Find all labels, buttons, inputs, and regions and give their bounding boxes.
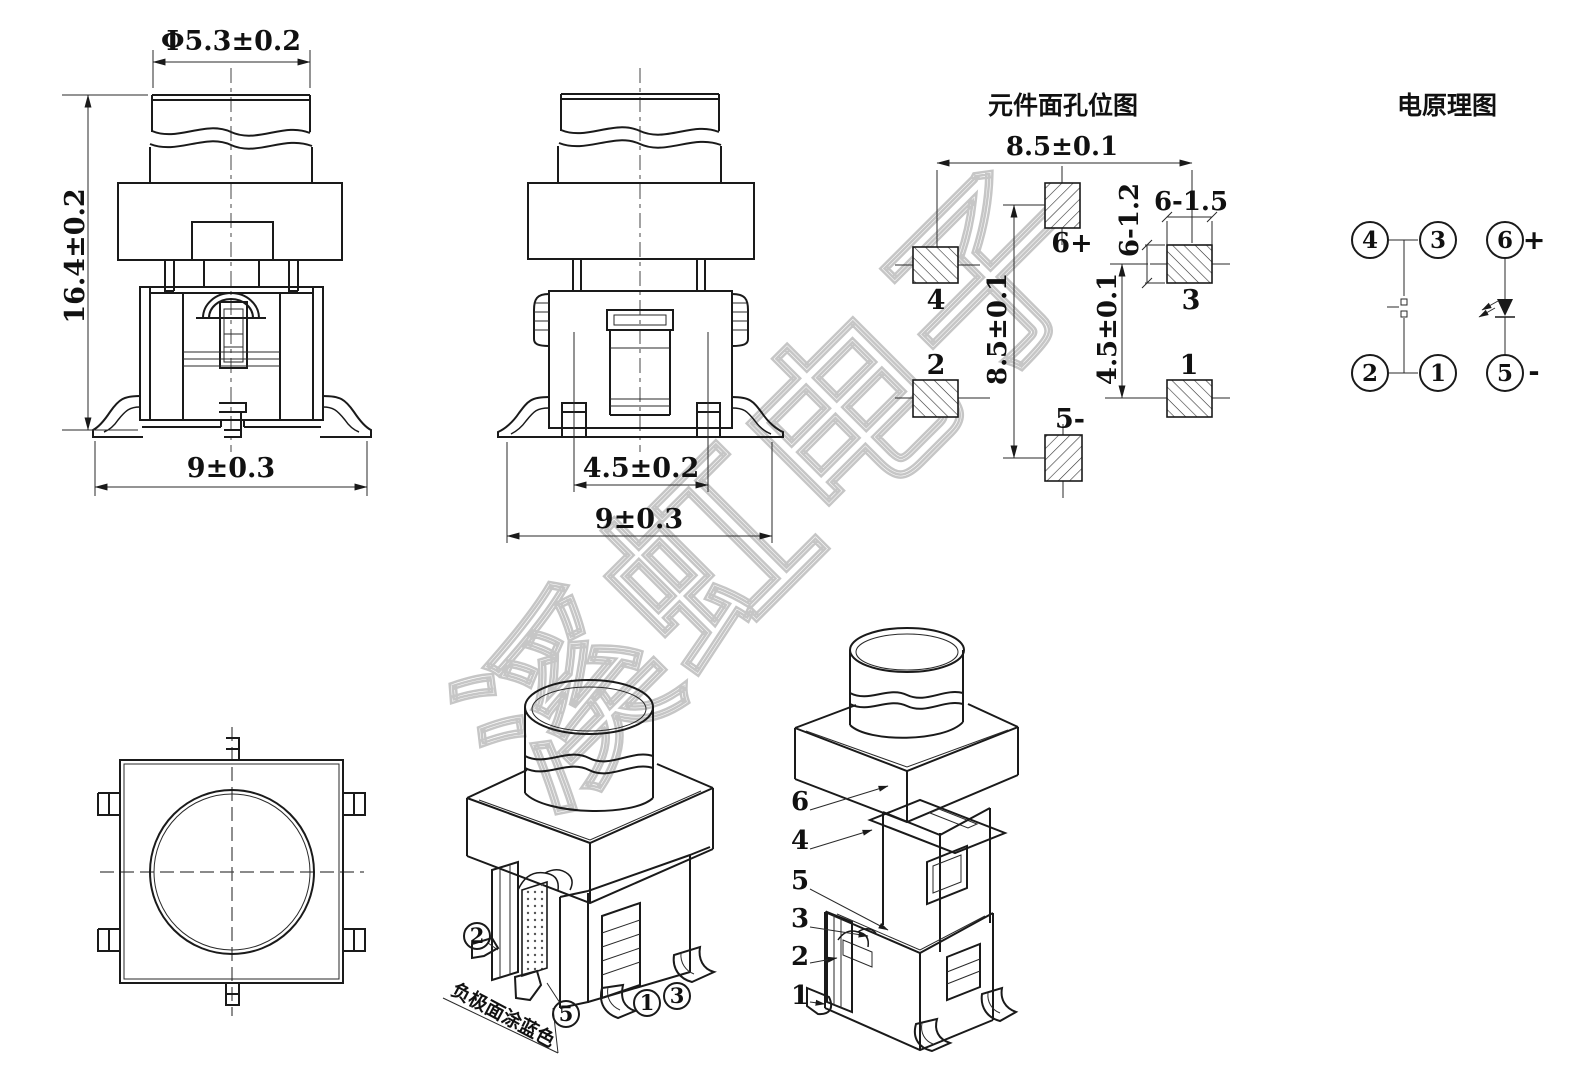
- pad-span-h-dim: 8.5±0.1: [1006, 132, 1118, 162]
- hole-height-dim: 6-1.2: [1115, 183, 1145, 257]
- schematic-pin-6: 6: [1497, 227, 1513, 254]
- iso-back-callout-4: 4: [791, 826, 809, 856]
- schematic-diagram: 电原理图 4 3 6 2 1 5 + -: [1352, 91, 1545, 391]
- pad-2-label: 2: [927, 350, 946, 381]
- iso-back-callout-3: 3: [791, 904, 809, 934]
- schematic-pin-3: 3: [1430, 227, 1446, 254]
- iso-front-callout-2: 2: [470, 923, 485, 948]
- front-diameter-dim: Φ5.3±0.2: [161, 26, 301, 57]
- iso-front-callout-3: 3: [670, 983, 685, 1008]
- top-view: [98, 727, 365, 1016]
- pad-6-label: 6+: [1051, 228, 1092, 259]
- pad-5: [1045, 435, 1082, 481]
- pad-1-label: 1: [1180, 350, 1199, 381]
- schematic-pin-5: 5: [1497, 360, 1513, 387]
- led-negative-face: [522, 882, 547, 976]
- iso-view-back: 6 4 5 3 2 1: [791, 628, 1018, 1051]
- front-height-dim: 16.4±0.2: [60, 188, 91, 323]
- pad-6: [1045, 183, 1080, 228]
- hole-width-dim: 6-1.5: [1154, 187, 1228, 217]
- pad-3: [1167, 245, 1212, 283]
- negative-face-note: 负极面涂蓝色: [448, 978, 559, 1052]
- schematic-pin-4: 4: [1362, 227, 1378, 254]
- pad-5-label: 5-: [1055, 404, 1085, 435]
- pad-3-label: 3: [1182, 285, 1201, 316]
- schematic-pin-2: 2: [1362, 360, 1378, 387]
- pad-2: [913, 380, 958, 417]
- side-width-dim: 9±0.3: [595, 504, 683, 535]
- iso-back-callout-6: 6: [791, 787, 809, 817]
- pad-4-label: 4: [927, 285, 946, 316]
- pad-pitch-v-dim: 4.5±0.1: [1093, 273, 1123, 385]
- iso-back-callout-1: 1: [791, 981, 809, 1011]
- iso-front-callout-5: 5: [559, 1001, 574, 1026]
- schematic-minus: -: [1528, 357, 1539, 388]
- led-symbol: [1497, 299, 1513, 316]
- pad-span-v-dim: 8.5±0.1: [983, 273, 1013, 385]
- front-width-dim: 9±0.3: [187, 453, 275, 484]
- pad-1: [1167, 380, 1212, 417]
- iso-back-callout-5: 5: [791, 866, 809, 896]
- cad-drawing-sheet: 溪虹电子 Φ5.3±0.2 16.4±0.2: [0, 0, 1591, 1091]
- front-view: Φ5.3±0.2 16.4±0.2 9±0.3: [60, 26, 371, 496]
- iso-back-callout-2: 2: [791, 942, 809, 972]
- schematic-pin-1: 1: [1430, 360, 1446, 387]
- pad-layout-title: 元件面孔位图: [988, 91, 1138, 120]
- schematic-plus: +: [1523, 225, 1546, 256]
- iso-front-callout-1: 1: [640, 990, 655, 1015]
- pad-4: [913, 247, 958, 283]
- schematic-title: 电原理图: [1397, 91, 1497, 120]
- side-pitch-dim: 4.5±0.2: [583, 453, 700, 484]
